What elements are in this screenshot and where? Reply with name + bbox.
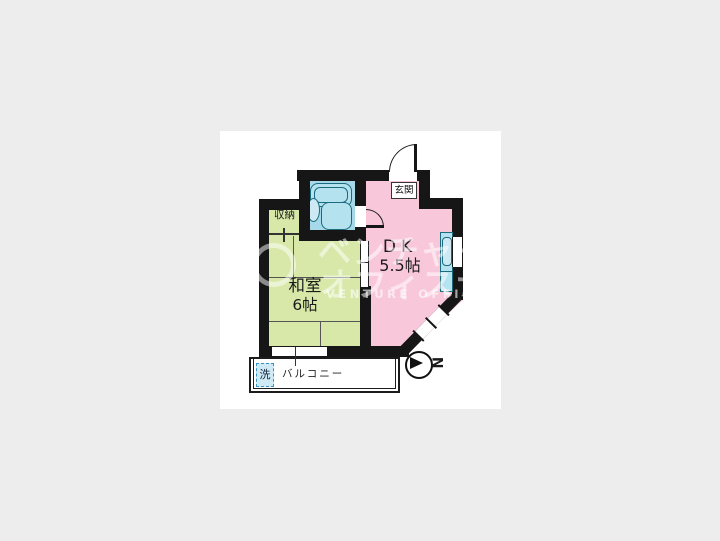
washitsu-room-size: 6帖	[279, 297, 331, 314]
kitchen-sink	[442, 237, 452, 266]
laundry-box: 洗	[256, 363, 274, 387]
balcony-label: バルコニー	[282, 369, 344, 381]
page-background: 玄関 DK 5.5帖 和室 6帖 収納 洗 バルコニー N ベンチャー オフィス…	[0, 0, 720, 541]
compass-arrow-icon	[410, 357, 423, 369]
dk-room-size: 5.5帖	[364, 257, 436, 275]
closet-label: 収納	[270, 210, 299, 222]
tatami-line	[267, 321, 361, 322]
dk-room-name: DK	[368, 238, 432, 257]
bathroom-door-leaf	[366, 225, 384, 228]
toilet-tank	[321, 202, 352, 230]
compass-north-letter: N	[428, 357, 443, 369]
washitsu-room-name: 和室	[279, 277, 331, 295]
balcony-window-tick	[295, 347, 296, 366]
bathtub-inner-rim	[314, 187, 348, 203]
genkan-label: 玄関	[392, 183, 416, 198]
window-right-wall	[452, 237, 463, 267]
kitchen-counter-divider	[441, 271, 452, 272]
wall-bathroom-bottom	[299, 230, 366, 241]
entrance-door-leaf	[414, 144, 417, 172]
laundry-label: 洗	[257, 364, 273, 385]
tatami-line	[320, 321, 321, 347]
wall-partition-washitsu-dk	[360, 286, 371, 352]
window-balcony	[272, 346, 327, 357]
tatami-line	[293, 236, 294, 277]
closet-door-tick	[283, 228, 285, 242]
bathroom-door-gap	[355, 206, 366, 227]
wall-left	[259, 199, 269, 357]
genkan-label-box: 玄関	[391, 182, 417, 199]
